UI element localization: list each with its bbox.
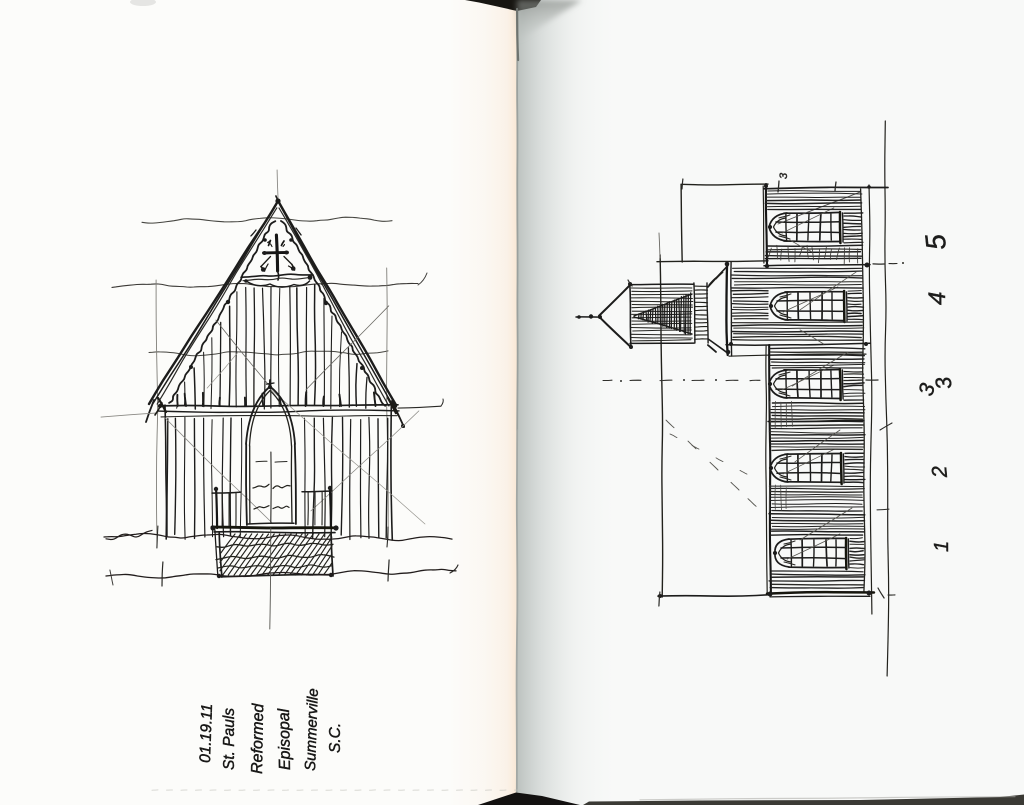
svg-text:4: 4 <box>924 292 951 305</box>
svg-text:Episopal: Episopal <box>276 708 294 770</box>
svg-text:1: 1 <box>931 541 953 552</box>
svg-text:Summerville: Summerville <box>302 688 322 771</box>
svg-text:01.19.11: 01.19.11 <box>197 703 216 763</box>
svg-text:St. Pauls: St. Pauls <box>221 708 238 770</box>
svg-text:S.C.: S.C. <box>327 723 344 753</box>
svg-text:Reformed: Reformed <box>249 702 267 774</box>
svg-text:3: 3 <box>778 172 790 179</box>
svg-text:2: 2 <box>928 465 952 480</box>
